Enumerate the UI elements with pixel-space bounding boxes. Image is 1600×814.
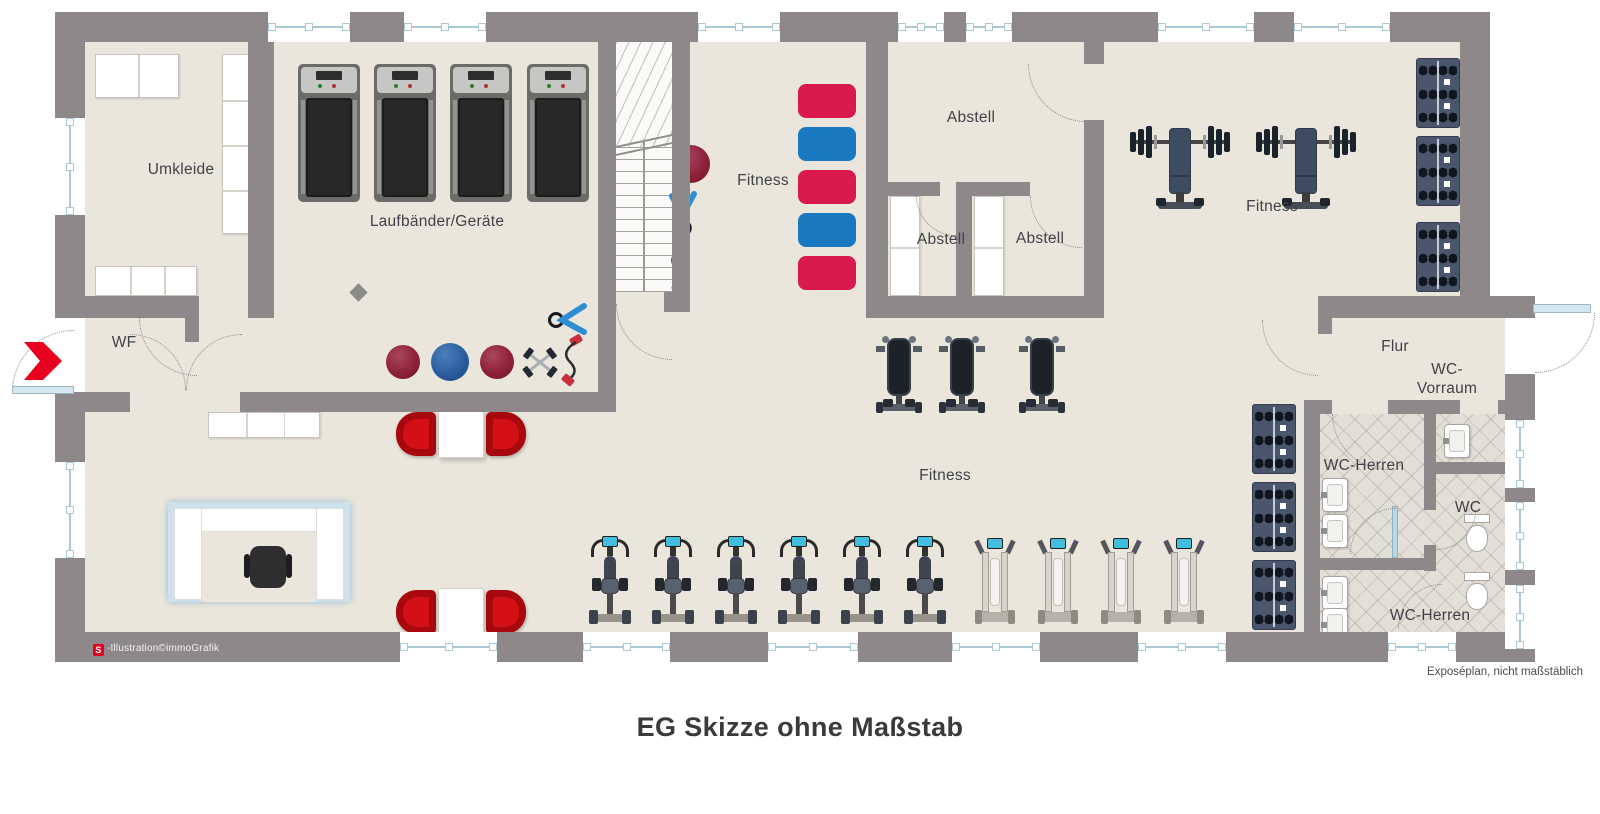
wall-segment [1318, 558, 1424, 570]
shelf-divider [975, 247, 1003, 249]
window [1505, 585, 1535, 649]
window-mullion [66, 462, 74, 470]
window-mullion [305, 23, 313, 31]
wall-segment [1304, 400, 1320, 632]
window-mullion [768, 643, 776, 651]
window-mullion [1158, 23, 1166, 31]
locker-shelf [208, 412, 320, 438]
exercise-bike-icon [778, 536, 820, 628]
exercise-mat [798, 170, 856, 204]
window-mullion [850, 643, 858, 651]
cross-trainer-icon [1164, 538, 1204, 628]
door-opening [1505, 318, 1535, 374]
window-mullion [1382, 23, 1390, 31]
window-mullion [478, 23, 486, 31]
treadmill-icon [298, 64, 360, 202]
treadmill-icon [527, 64, 589, 202]
window-mullion [1516, 641, 1524, 649]
shelf-divider [284, 413, 286, 437]
window-mullion [404, 23, 412, 31]
room-label-fitness-mats: Fitness [737, 172, 789, 190]
window-mullion [441, 23, 449, 31]
cross-trainer-icon [975, 538, 1015, 628]
wall-segment [1318, 318, 1332, 334]
window [1158, 12, 1254, 42]
room-label-wc-herren-lower: WC-Herren [1390, 607, 1471, 625]
window-mullion [1516, 562, 1524, 570]
window-mullion [1032, 643, 1040, 651]
window [583, 632, 670, 662]
door-arc [1535, 313, 1595, 373]
window-mullion [985, 23, 993, 31]
shelf-divider [164, 267, 166, 295]
visitor-chair [486, 590, 526, 634]
locker-shelf [95, 266, 197, 296]
visitor-chair [396, 412, 436, 456]
wall-segment [1436, 462, 1505, 474]
shelf-divider [138, 55, 140, 97]
window-mullion [662, 643, 670, 651]
barbell-station-icon [1130, 116, 1230, 212]
window [55, 462, 85, 558]
locker-shelf [974, 196, 1004, 296]
window [952, 632, 1040, 662]
cross-trainer-icon [1038, 538, 1078, 628]
wall-segment [248, 42, 274, 318]
wall-segment [972, 182, 1030, 196]
wall-segment [1084, 120, 1104, 318]
window-mullion [66, 118, 74, 126]
window [1138, 632, 1226, 662]
dumbbell-rack-icon [1416, 222, 1460, 292]
locker-shelf [95, 54, 179, 98]
room-label-abstell-main: Abstell [947, 109, 995, 127]
exercise-ball-icon [480, 345, 514, 379]
window-mullion [1294, 23, 1302, 31]
disclaimer-text: Exposéplan, nicht maßstäblich [1427, 666, 1583, 678]
window-mullion [1516, 480, 1524, 488]
window-mullion [1516, 532, 1524, 540]
wall-segment [55, 296, 199, 318]
shelf-divider [223, 145, 249, 147]
room-label-laufbaender: Laufbänder/Geräte [370, 213, 504, 231]
exercise-ball-icon [431, 343, 469, 381]
wall-segment [240, 392, 598, 412]
window-mullion [952, 643, 960, 651]
wall-segment [888, 182, 940, 196]
window-mullion [66, 163, 74, 171]
wall-segment [956, 182, 972, 318]
exercise-mat [798, 84, 856, 118]
door-leaf [1533, 304, 1591, 313]
sink-icon [1322, 576, 1348, 610]
window-mullion [772, 23, 780, 31]
room-label-wc: WC [1455, 499, 1481, 517]
window-mullion [936, 23, 944, 31]
window-mullion [1178, 643, 1186, 651]
window-mullion [1004, 23, 1012, 31]
shelf-divider [223, 190, 249, 192]
wall-segment [1320, 400, 1332, 414]
sparkasse-logo-icon: S [93, 644, 104, 656]
room-label-flur: Flur [1381, 338, 1409, 356]
window-mullion [1138, 643, 1146, 651]
window-mullion [735, 23, 743, 31]
wall-segment [1084, 42, 1104, 64]
room-label-wc-vorraum: WC- Vorraum [1417, 360, 1477, 398]
exercise-bike-icon [904, 536, 946, 628]
room-label-wc-herren-upper: WC-Herren [1324, 457, 1405, 475]
exercise-bike-icon [652, 536, 694, 628]
shelf-divider [223, 100, 249, 102]
exercise-mat [798, 127, 856, 161]
treadmill-icon [374, 64, 436, 202]
wall-segment [85, 392, 130, 412]
dumbbell-rack-icon [1416, 136, 1460, 206]
dumbbell-rack-icon [1252, 404, 1296, 474]
window-mullion [66, 506, 74, 514]
sink-icon [1322, 514, 1348, 548]
cross-trainer-icon [1101, 538, 1141, 628]
window-mullion [1448, 643, 1456, 651]
crossed-dumbbells-icon [520, 344, 560, 382]
visitor-chair [396, 590, 436, 634]
window [1294, 12, 1390, 42]
window-mullion [583, 643, 591, 651]
window-mullion [1516, 502, 1524, 510]
window [1388, 632, 1456, 662]
treadmill-icon [450, 64, 512, 202]
window-mullion [1418, 643, 1426, 651]
office-chair [250, 546, 286, 588]
window-mullion [66, 550, 74, 558]
toilet-icon [1462, 572, 1492, 612]
visitor-table [438, 588, 484, 638]
room-label-umkleide: Umkleide [148, 161, 215, 179]
exercise-bike-icon [589, 536, 631, 628]
window-mullion [992, 643, 1000, 651]
wall-segment [1424, 545, 1436, 571]
exercise-ball-icon [386, 345, 420, 379]
wall-segment [672, 42, 690, 292]
window [966, 12, 1012, 42]
dumbbell-rack-icon [1252, 482, 1296, 552]
window-mullion [698, 23, 706, 31]
shelf-divider [130, 267, 132, 295]
locker-shelf [890, 196, 920, 296]
shelf-divider [891, 247, 919, 249]
wc-vorraum-line1: WC- [1417, 360, 1477, 379]
sink-icon [1322, 478, 1348, 512]
room-label-abstell-left: Abstell [917, 231, 965, 249]
weight-bench-icon [1019, 336, 1065, 416]
window [268, 12, 350, 42]
wall-segment [1318, 296, 1460, 318]
window [698, 12, 780, 42]
window-mullion [445, 643, 453, 651]
dumbbell-rack-icon [1252, 560, 1296, 630]
credit-text: -Illustration©immoGrafik [107, 643, 219, 654]
dumbbell-rack-icon [1416, 58, 1460, 128]
window-mullion [1388, 643, 1396, 651]
wall-segment [1460, 12, 1490, 318]
window-mullion [1246, 23, 1254, 31]
locker-shelf [222, 54, 250, 234]
wall-segment [866, 296, 1104, 318]
window [404, 12, 486, 42]
exercise-mat [798, 256, 856, 290]
wall-segment [1498, 400, 1505, 414]
window-mullion [623, 643, 631, 651]
window-mullion [917, 23, 925, 31]
visitor-chair [486, 412, 526, 456]
wall-segment [1424, 414, 1436, 510]
wall-segment [1388, 400, 1460, 414]
weight-bench-icon [876, 336, 922, 416]
wall-segment [866, 42, 888, 318]
wc-vorraum-line2: Vorraum [1417, 379, 1477, 398]
window-mullion [809, 643, 817, 651]
window-mullion [1218, 643, 1226, 651]
exercise-mat [798, 213, 856, 247]
weight-bench-icon [939, 336, 985, 416]
window [768, 632, 858, 662]
window-mullion [342, 23, 350, 31]
window-mullion [1516, 420, 1524, 428]
window [1505, 420, 1535, 488]
room-label-fitness-weights: Fitness [1246, 198, 1298, 216]
room-label-abstell-right: Abstell [1016, 230, 1064, 248]
window-mullion [966, 23, 974, 31]
floor-plan-canvas: Umkleide Laufbänder/Geräte Fitness Abste… [0, 0, 1600, 814]
room-label-fitness-main: Fitness [919, 467, 971, 485]
door-leaf [12, 386, 74, 394]
window-mullion [1202, 23, 1210, 31]
room-label-wf: WF [112, 334, 137, 352]
floor-plan: Umkleide Laufbänder/Geräte Fitness Abste… [0, 0, 1600, 700]
credit-line: S-Illustration©immoGrafik [93, 643, 219, 656]
window [1505, 502, 1535, 570]
window-mullion [268, 23, 276, 31]
window-mullion [1516, 585, 1524, 593]
window-mullion [400, 643, 408, 651]
window-mullion [1338, 23, 1346, 31]
window-mullion [489, 643, 497, 651]
window [898, 12, 944, 42]
shelf-divider [246, 413, 248, 437]
window [400, 632, 497, 662]
window-mullion [1516, 450, 1524, 458]
window [55, 118, 85, 215]
sink-icon [1444, 424, 1470, 458]
exercise-bike-icon [841, 536, 883, 628]
window-mullion [898, 23, 906, 31]
visitor-table [438, 408, 484, 458]
plan-title: EG Skizze ohne Maßstab [0, 712, 1600, 743]
window-mullion [66, 207, 74, 215]
exercise-bike-icon [715, 536, 757, 628]
window-mullion [1516, 613, 1524, 621]
wall-segment [598, 42, 616, 412]
